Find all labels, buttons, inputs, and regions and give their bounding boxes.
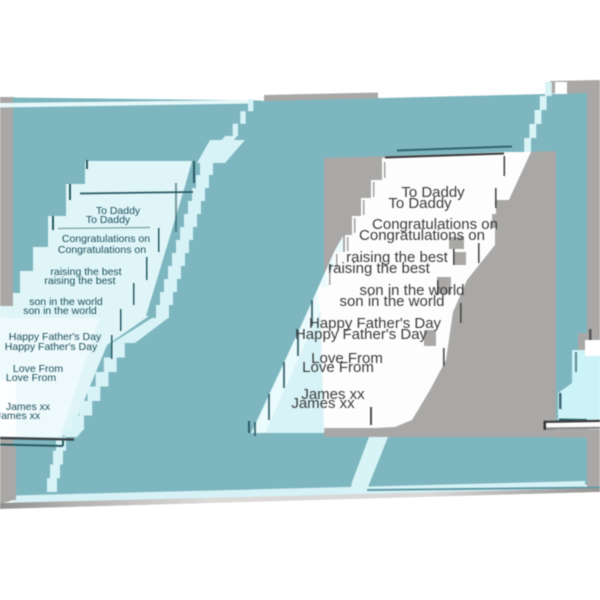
svg-text:James xx: James xx — [0, 410, 41, 422]
svg-text:To Daddy: To Daddy — [86, 214, 131, 226]
svg-text:Love From: Love From — [6, 372, 56, 384]
svg-text:raising the best: raising the best — [328, 260, 431, 277]
svg-text:Happy Father's Day: Happy Father's Day — [295, 326, 428, 343]
svg-text:Congratulations on: Congratulations on — [359, 227, 485, 244]
svg-text:Love From: Love From — [302, 359, 374, 376]
svg-text:James xx: James xx — [291, 395, 355, 412]
svg-text:Happy Father's Day: Happy Father's Day — [5, 341, 98, 353]
svg-text:son in the world: son in the world — [23, 305, 97, 317]
svg-text:raising the best: raising the best — [44, 275, 115, 287]
svg-text:son in the world: son in the world — [339, 293, 444, 310]
svg-text:Congratulations on: Congratulations on — [58, 244, 146, 256]
svg-text:To Daddy: To Daddy — [388, 195, 452, 212]
